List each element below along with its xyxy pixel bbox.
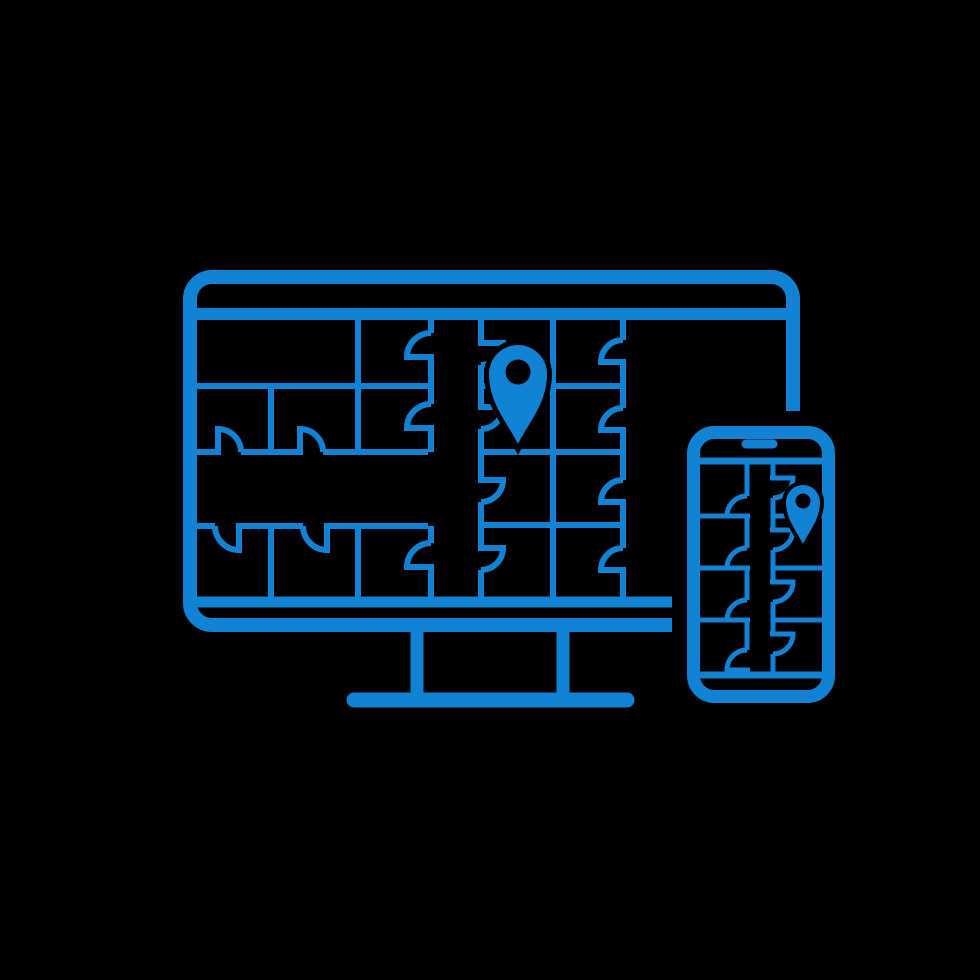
responsive-map-devices-icon bbox=[0, 0, 980, 980]
pin-hole bbox=[506, 360, 531, 385]
pin-hole bbox=[796, 494, 811, 509]
icon-stage bbox=[0, 0, 980, 980]
